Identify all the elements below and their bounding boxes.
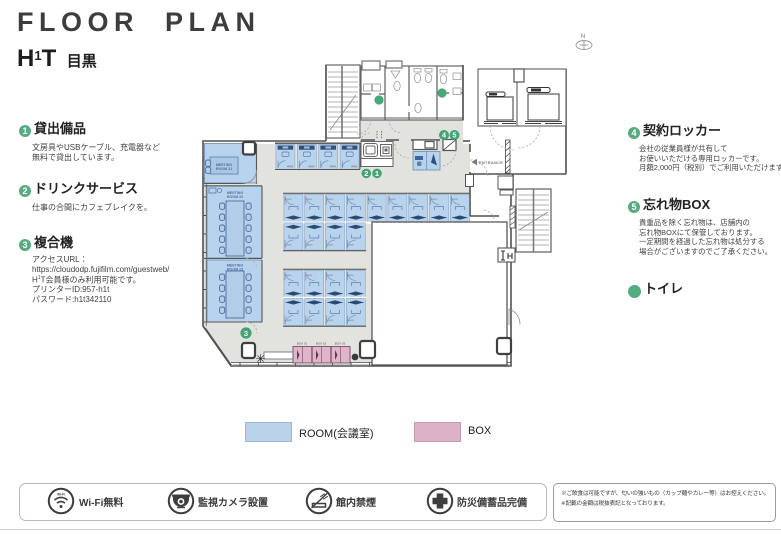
svg-text:ROOM 21: ROOM 21	[216, 167, 232, 171]
svg-text:1: 1	[375, 169, 379, 178]
svg-text:BOX 01: BOX 01	[297, 342, 308, 346]
svg-text:2: 2	[364, 169, 368, 178]
svg-text:BOX 03: BOX 03	[335, 342, 346, 346]
svg-text:ROOM 22: ROOM 22	[227, 195, 243, 199]
svg-text:ENTRANCE: ENTRANCE	[479, 160, 503, 165]
svg-text:5: 5	[452, 131, 456, 140]
svg-text:✳: ✳	[256, 352, 266, 366]
svg-text:ROOM 23: ROOM 23	[227, 268, 243, 272]
svg-text:3: 3	[244, 329, 248, 338]
svg-text:BOX 02: BOX 02	[316, 342, 327, 346]
svg-text:N: N	[581, 34, 585, 40]
